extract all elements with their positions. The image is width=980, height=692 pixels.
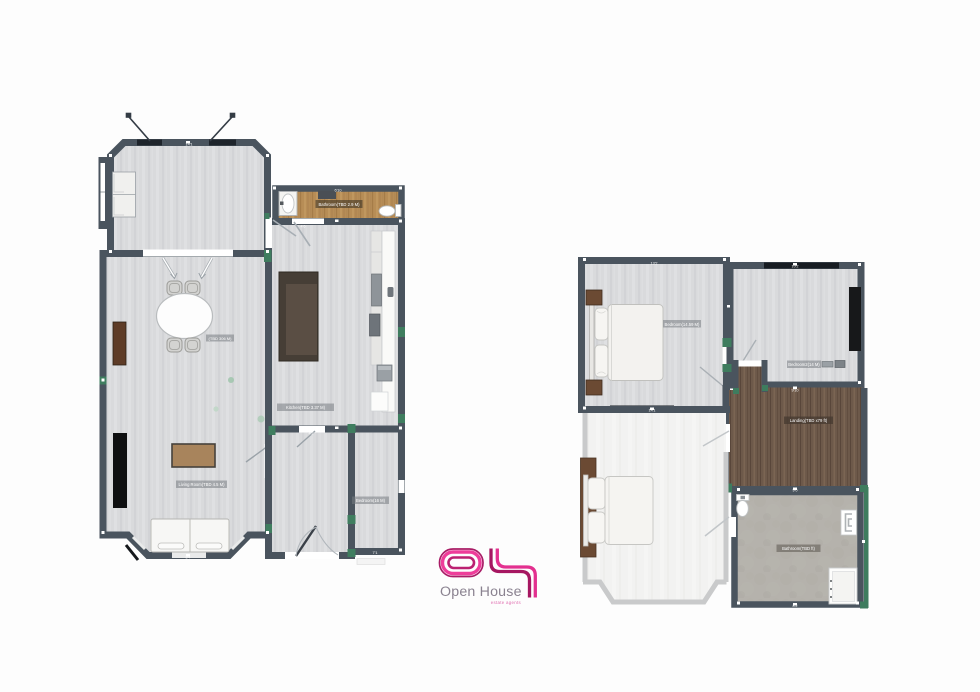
svg-text:Landing(TBD x79 ft): Landing(TBD x79 ft) (790, 418, 828, 423)
svg-text:Bedroom2(14 M): Bedroom2(14 M) (788, 362, 820, 367)
svg-text:14'1: 14'1 (185, 142, 192, 146)
svg-text:9'0: 9'0 (793, 489, 798, 493)
svg-text:4'6: 4'6 (301, 225, 306, 229)
svg-text:estate agents: estate agents (491, 600, 522, 605)
svg-text:(TBD 306 M): (TBD 306 M) (209, 336, 233, 341)
svg-text:6'10: 6'10 (334, 189, 341, 193)
svg-text:7'1: 7'1 (373, 551, 378, 555)
svg-text:Bathroom(TBD 2.9 M): Bathroom(TBD 2.9 M) (319, 202, 361, 207)
svg-text:13'2: 13'2 (650, 262, 657, 266)
svg-text:9'10: 9'10 (791, 389, 798, 393)
svg-text:Bedroom(14.59 M): Bedroom(14.59 M) (665, 322, 701, 327)
svg-text:10'2: 10'2 (791, 265, 798, 269)
svg-text:Bedroom(16 M): Bedroom(16 M) (356, 498, 386, 503)
svg-text:Bathroom(TBD ft): Bathroom(TBD ft) (782, 546, 815, 551)
svg-text:8'4: 8'4 (186, 556, 191, 560)
svg-text:4'2: 4'2 (309, 432, 314, 436)
svg-text:Kitchen(TBD 3.37 M): Kitchen(TBD 3.37 M) (286, 405, 326, 410)
svg-text:14'1: 14'1 (648, 409, 655, 413)
svg-text:Living Room(TBD 4.5 M): Living Room(TBD 4.5 M) (178, 482, 225, 487)
svg-text:8'2: 8'2 (793, 604, 798, 608)
svg-text:Open House: Open House (440, 584, 522, 600)
